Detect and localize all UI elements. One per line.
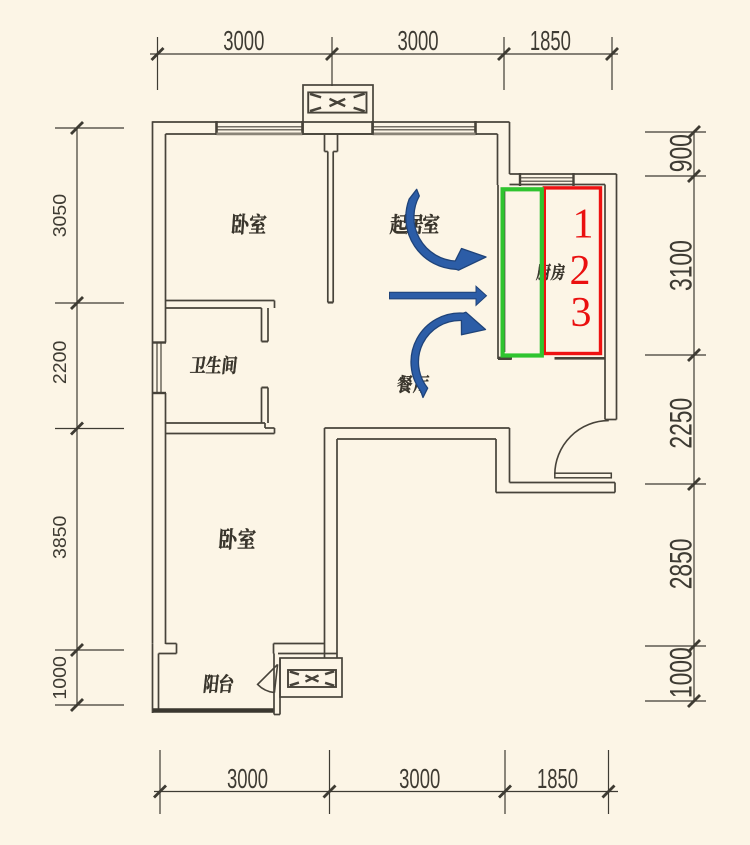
svg-text:2: 2 (570, 248, 591, 294)
svg-text:1: 1 (573, 202, 594, 248)
svg-text:2850: 2850 (663, 538, 698, 589)
svg-text:3000: 3000 (397, 26, 438, 57)
svg-text:1000: 1000 (663, 647, 698, 698)
svg-text:900: 900 (663, 134, 698, 172)
svg-text:3000: 3000 (399, 764, 440, 795)
svg-text:3: 3 (571, 290, 592, 336)
svg-text:1850: 1850 (537, 764, 578, 795)
svg-text:2250: 2250 (663, 398, 698, 449)
svg-text:2200: 2200 (50, 341, 70, 384)
svg-text:3050: 3050 (50, 194, 70, 237)
svg-text:3000: 3000 (223, 26, 264, 57)
svg-text:3100: 3100 (663, 240, 698, 291)
svg-text:3850: 3850 (50, 516, 70, 559)
svg-text:1850: 1850 (530, 26, 571, 57)
svg-text:3000: 3000 (227, 764, 268, 795)
svg-text:1000: 1000 (50, 656, 70, 699)
